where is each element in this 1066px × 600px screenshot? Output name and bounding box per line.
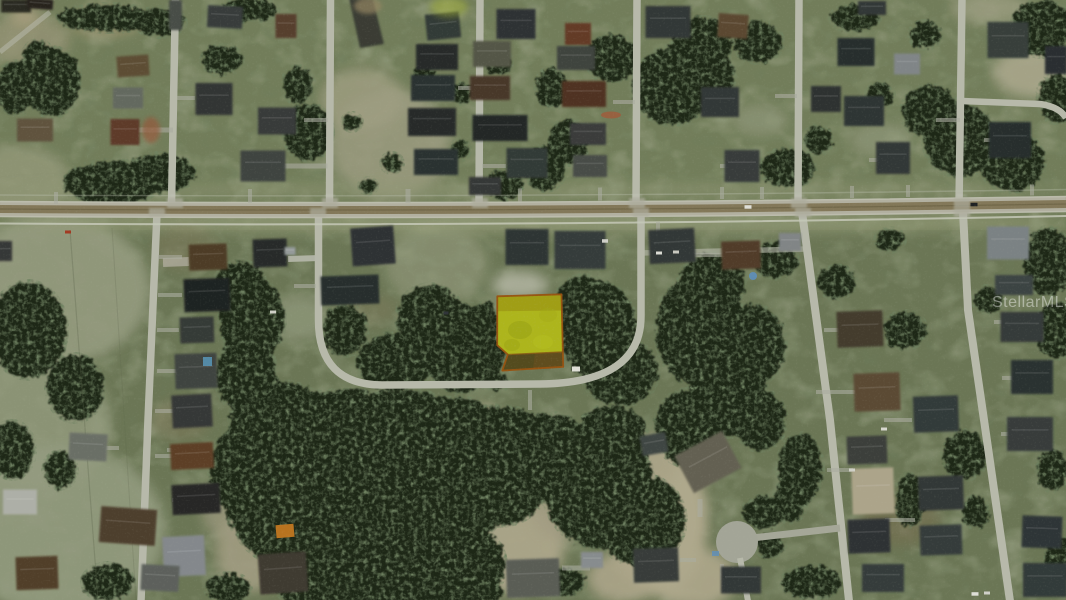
svg-text:StellarMLS: StellarMLS: [992, 294, 1066, 311]
